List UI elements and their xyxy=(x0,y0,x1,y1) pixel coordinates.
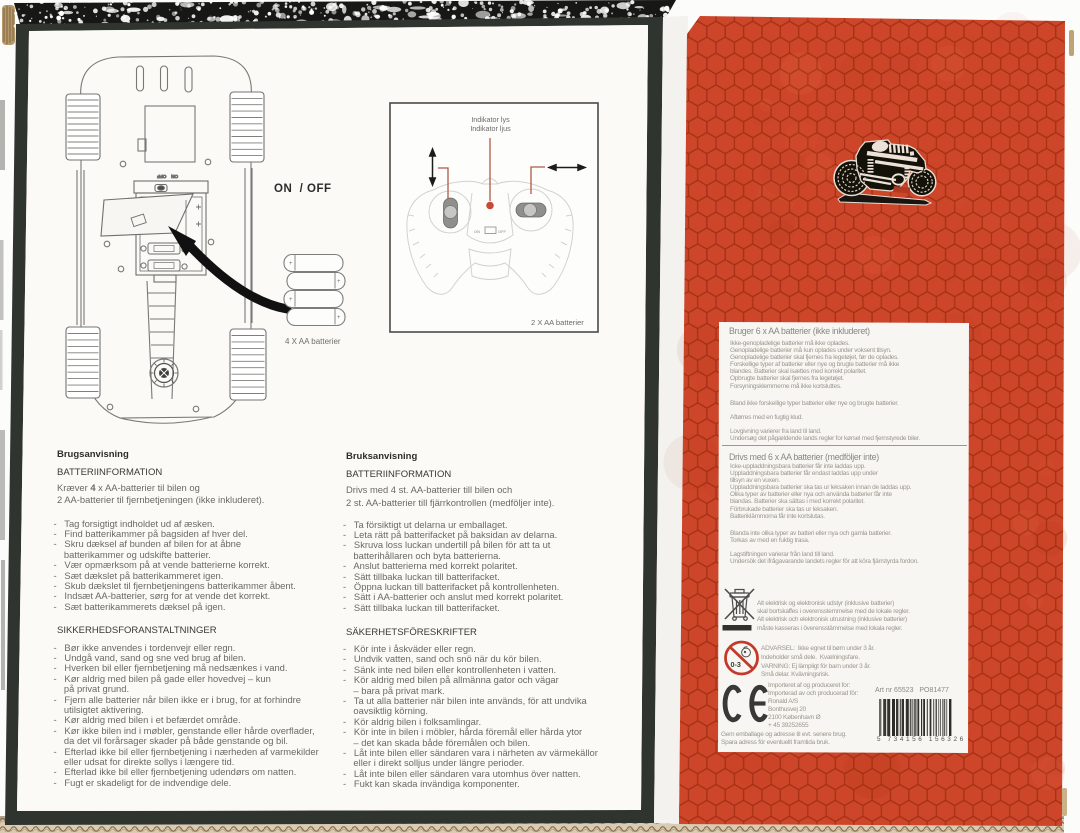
svg-text:+: + xyxy=(337,279,341,285)
svg-text:OFF: OFF xyxy=(498,229,507,234)
svg-text:+: + xyxy=(289,261,293,267)
svg-text:ON: ON xyxy=(474,229,480,234)
svg-text:+: + xyxy=(337,315,341,321)
svg-text:0-3: 0-3 xyxy=(731,660,741,669)
svg-text:ON OFF: ON OFF xyxy=(157,174,178,179)
svg-text:+: + xyxy=(289,297,293,303)
